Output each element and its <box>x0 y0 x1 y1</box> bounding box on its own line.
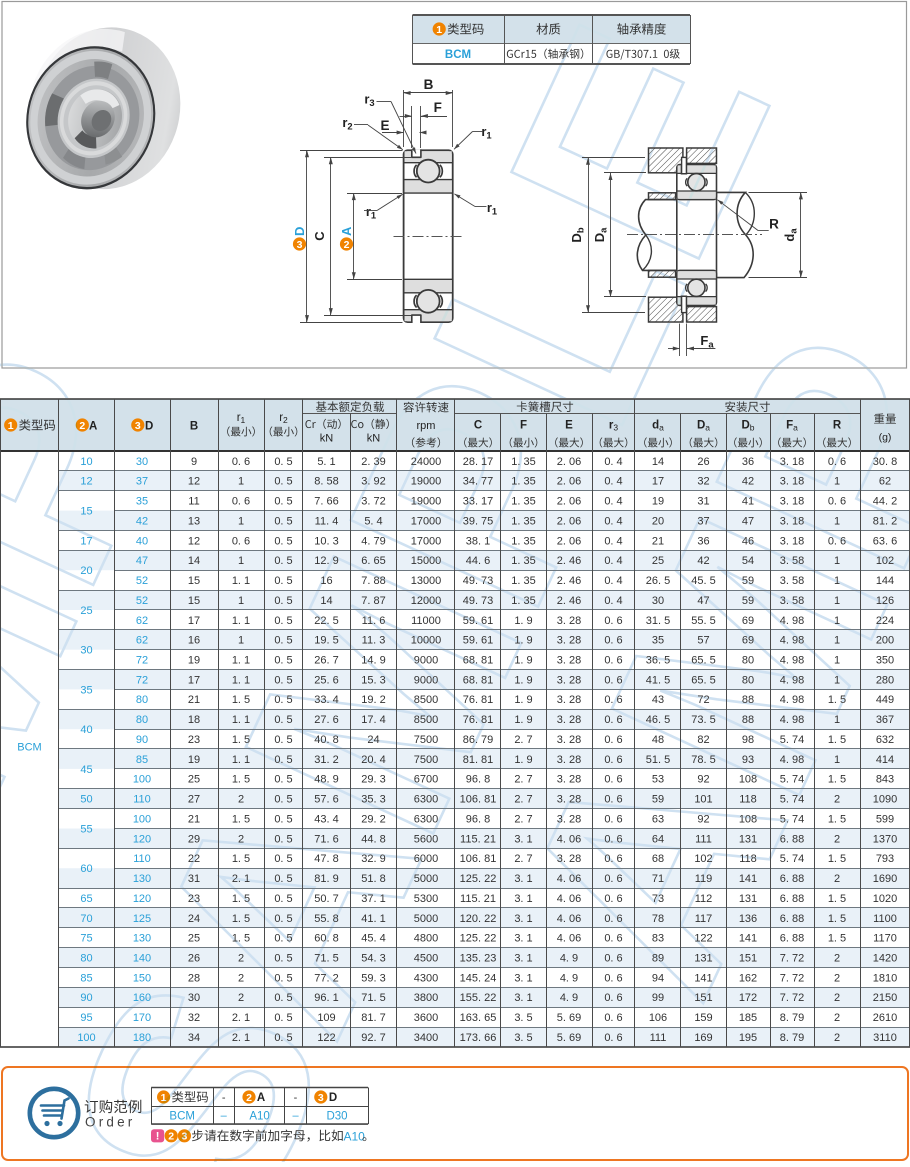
svg-text:1: 1 <box>436 24 442 36</box>
svg-text:0. 6: 0. 6 <box>604 992 622 1004</box>
svg-text:163. 65: 163. 65 <box>460 1012 497 1024</box>
svg-text:15: 15 <box>188 595 200 607</box>
svg-text:72: 72 <box>136 674 148 686</box>
svg-text:2: 2 <box>834 953 840 965</box>
svg-text:106: 106 <box>649 1012 667 1024</box>
svg-text:8. 79: 8. 79 <box>780 1012 804 1024</box>
svg-text:2: 2 <box>834 972 840 984</box>
svg-text:0. 5: 0. 5 <box>274 476 292 488</box>
svg-text:3. 1: 3. 1 <box>514 933 532 945</box>
svg-text:3. 5: 3. 5 <box>514 1012 532 1024</box>
svg-text:8. 79: 8. 79 <box>780 1032 804 1044</box>
svg-text:2: 2 <box>834 1032 840 1044</box>
svg-text:3. 1: 3. 1 <box>514 972 532 984</box>
svg-text:1: 1 <box>238 476 244 488</box>
svg-text:0. 6: 0. 6 <box>232 496 250 508</box>
svg-text:1. 5: 1. 5 <box>828 933 846 945</box>
svg-text:12: 12 <box>188 535 200 547</box>
svg-text:99: 99 <box>652 992 664 1004</box>
svg-text:4. 9: 4. 9 <box>560 992 578 1004</box>
svg-text:5. 69: 5. 69 <box>557 1032 581 1044</box>
svg-text:90: 90 <box>136 734 148 746</box>
svg-text:85: 85 <box>136 754 148 766</box>
svg-text:C: C <box>312 231 327 241</box>
svg-text:1690: 1690 <box>873 873 897 885</box>
svg-text:1810: 1810 <box>873 972 897 984</box>
svg-text:65: 65 <box>80 893 92 905</box>
svg-text:3. 1: 3. 1 <box>514 992 532 1004</box>
svg-text:F: F <box>434 100 442 115</box>
svg-text:599: 599 <box>876 813 894 825</box>
svg-text:2150: 2150 <box>873 992 897 1004</box>
svg-text:2: 2 <box>834 1012 840 1024</box>
svg-text:5. 69: 5. 69 <box>557 1012 581 1024</box>
svg-text:0. 6: 0. 6 <box>604 972 622 984</box>
svg-text:B: B <box>424 77 434 92</box>
svg-text:16: 16 <box>188 635 200 647</box>
svg-text:1: 1 <box>238 555 244 567</box>
svg-text:60: 60 <box>80 863 92 875</box>
svg-text:15: 15 <box>188 575 200 587</box>
svg-text:72: 72 <box>136 655 148 667</box>
svg-text:3400: 3400 <box>414 1032 438 1044</box>
svg-text:50: 50 <box>80 794 92 806</box>
svg-text:0. 6: 0. 6 <box>604 1012 622 1024</box>
svg-text:19: 19 <box>188 655 200 667</box>
svg-text:4. 9: 4. 9 <box>560 953 578 965</box>
svg-text:1420: 1420 <box>873 953 897 965</box>
svg-text:0. 6: 0. 6 <box>232 535 250 547</box>
svg-text:E: E <box>380 118 389 133</box>
svg-text:2: 2 <box>344 239 350 251</box>
svg-text:1370: 1370 <box>873 833 897 845</box>
svg-text:1020: 1020 <box>873 893 897 905</box>
svg-text:1. 5: 1. 5 <box>828 893 846 905</box>
svg-text:793: 793 <box>876 853 894 865</box>
svg-text:0. 6: 0. 6 <box>232 456 250 468</box>
svg-text:BCM: BCM <box>445 49 471 61</box>
svg-text:2610: 2610 <box>873 1012 897 1024</box>
svg-text:7. 72: 7. 72 <box>780 992 804 1004</box>
svg-text:1: 1 <box>238 515 244 527</box>
svg-text:3110: 3110 <box>873 1032 897 1044</box>
svg-text:14: 14 <box>188 555 200 567</box>
svg-text:45: 45 <box>80 764 92 776</box>
svg-text:70: 70 <box>80 913 92 925</box>
svg-text:B: B <box>190 420 198 432</box>
svg-text:3: 3 <box>297 239 303 251</box>
svg-text:1100: 1100 <box>873 913 897 925</box>
svg-text:1. 5: 1. 5 <box>828 913 846 925</box>
svg-text:100: 100 <box>133 774 151 786</box>
svg-text:17: 17 <box>188 674 200 686</box>
svg-text:135. 23: 135. 23 <box>460 953 497 965</box>
svg-text:169: 169 <box>694 1032 712 1044</box>
svg-text:173. 66: 173. 66 <box>460 1032 497 1044</box>
svg-text:155. 22: 155. 22 <box>460 992 497 1004</box>
svg-text:0. 6: 0. 6 <box>604 1032 622 1044</box>
svg-text:17: 17 <box>188 615 200 627</box>
svg-text:1090: 1090 <box>873 794 897 806</box>
svg-text:1170: 1170 <box>873 933 897 945</box>
svg-text:2: 2 <box>834 873 840 885</box>
svg-text:125. 22: 125. 22 <box>460 933 497 945</box>
svg-text:3. 5: 3. 5 <box>514 1032 532 1044</box>
svg-text:80: 80 <box>136 714 148 726</box>
svg-text:3. 1: 3. 1 <box>514 953 532 965</box>
svg-text:2: 2 <box>834 992 840 1004</box>
svg-text:145. 24: 145. 24 <box>460 972 497 984</box>
svg-text:A: A <box>339 226 354 236</box>
svg-text:55: 55 <box>80 823 92 835</box>
svg-text:4. 9: 4. 9 <box>560 972 578 984</box>
svg-text:D: D <box>292 227 307 236</box>
svg-text:111: 111 <box>650 1032 667 1044</box>
svg-text:80: 80 <box>136 694 148 706</box>
svg-text:0. 5: 0. 5 <box>274 456 292 468</box>
